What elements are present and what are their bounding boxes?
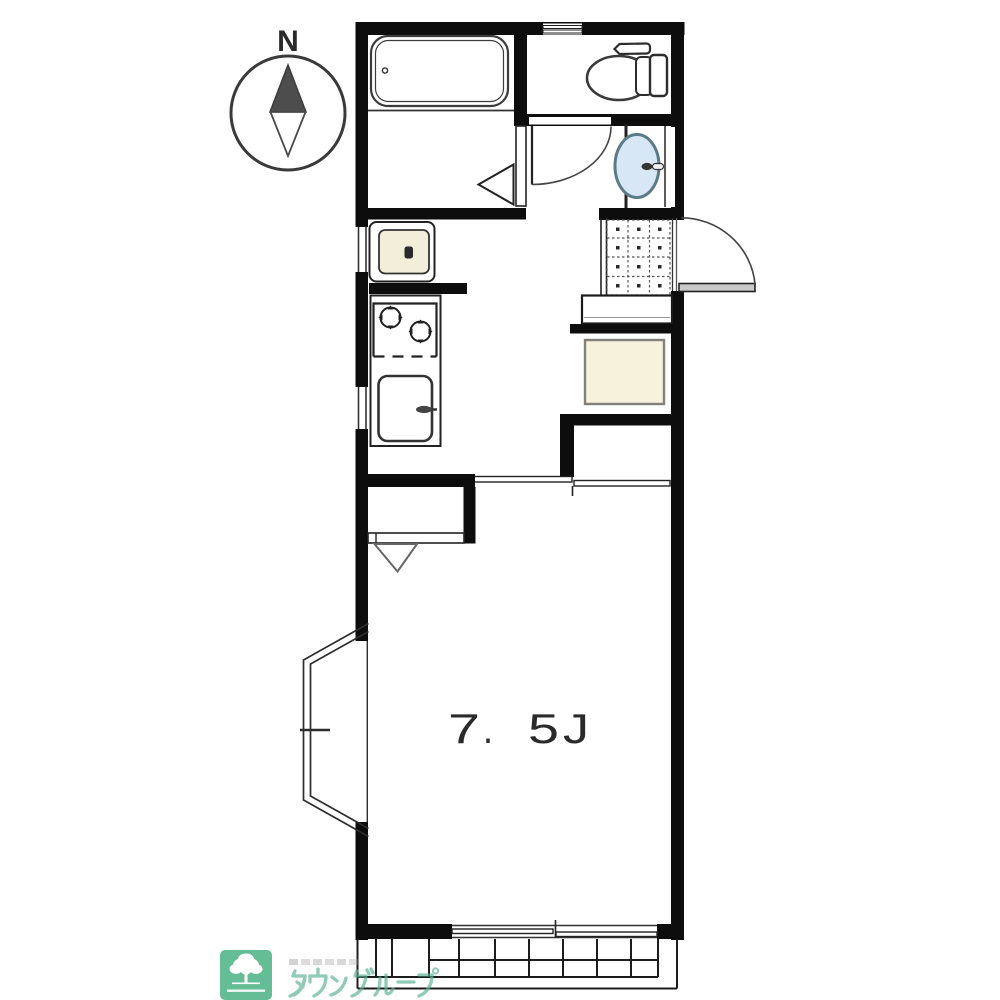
svg-text:.: . (483, 705, 493, 752)
svg-text:5: 5 (528, 705, 559, 752)
svg-text:7: 7 (448, 705, 480, 752)
svg-text:J: J (563, 705, 589, 752)
svg-text:N: N (277, 25, 299, 58)
